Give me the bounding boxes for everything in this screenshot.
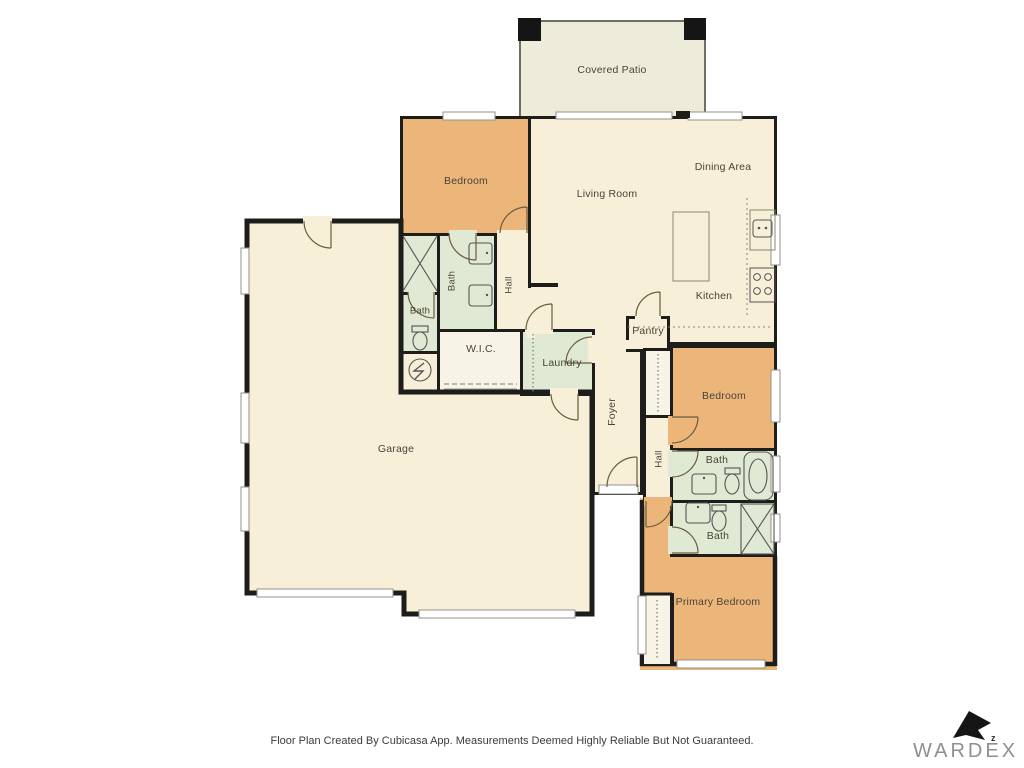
wardex-logo-text: WARDEX [913, 740, 1023, 763]
room-label-pantry: Pantry [632, 325, 664, 337]
floor-plan: z Covered Patio Bedroom Living Room Dini… [0, 0, 1024, 768]
room-label-dining-area: Dining Area [695, 161, 751, 173]
room-label-garage: Garage [378, 443, 414, 455]
room-shower-stall [400, 233, 440, 295]
room-foyer-closet [643, 348, 673, 418]
room-label-hall-upper: Hall [504, 276, 515, 293]
room-label-bath-lower-right: Bath [707, 530, 729, 542]
disclaimer-text: Floor Plan Created By Cubicasa App. Meas… [0, 735, 1024, 747]
room-label-laundry: Laundry [542, 357, 581, 369]
room-label-foyer: Foyer [606, 398, 618, 426]
room-label-kitchen: Kitchen [696, 290, 732, 302]
room-label-bath-ensuite: Bath [447, 271, 458, 291]
room-label-living-room: Living Room [577, 188, 638, 200]
room-label-primary-bedroom: Primary Bedroom [676, 596, 761, 608]
room-label-bath-upper-right: Bath [706, 454, 728, 466]
room-bath-lower-right [670, 500, 777, 557]
room-label-hall-lower: Hall [654, 450, 665, 467]
room-bath-guest [400, 292, 440, 354]
room-water-heater-nook [400, 351, 440, 394]
room-label-wic: W.I.C. [466, 343, 496, 355]
room-label-bedroom-middle: Bedroom [702, 390, 746, 402]
room-label-covered-patio: Covered Patio [577, 64, 646, 76]
room-label-bath-guest: Bath [410, 306, 430, 317]
room-living-dining-kitchen [528, 116, 777, 345]
room-label-bedroom-top-left: Bedroom [444, 175, 488, 187]
room-wic [437, 329, 523, 393]
wardex-logo: WARDEX [905, 704, 1023, 766]
